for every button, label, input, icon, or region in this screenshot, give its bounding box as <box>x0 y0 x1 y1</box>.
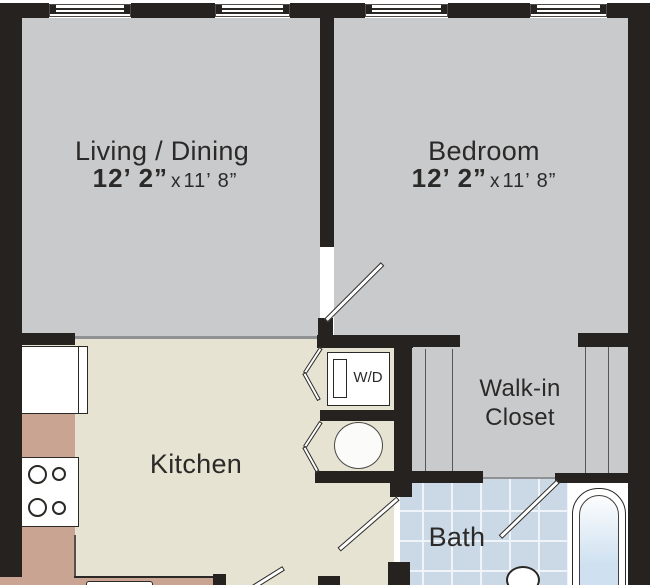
kitchen-counter-upper <box>18 414 75 458</box>
wall-bottom-stub-entry-right <box>318 576 340 585</box>
window-glazing-line <box>531 8 606 10</box>
closet-shelf-line <box>608 347 609 473</box>
stove-burner-small-top <box>52 467 66 481</box>
dimension-primary: 12’ 2” <box>93 163 168 193</box>
wall-top-segment <box>448 3 530 18</box>
wall-top-segment <box>131 3 215 18</box>
wall-wd-divider <box>320 410 398 421</box>
window-jamb <box>124 5 130 14</box>
kitchen-label-text: Kitchen <box>150 449 242 479</box>
bedroom-label-text: Bedroom <box>428 136 540 166</box>
dimension-secondary: 11’ 8” <box>503 170 557 192</box>
kitchen-label: Kitchen <box>150 449 242 480</box>
window <box>49 4 131 17</box>
wall-mid-left <box>0 333 75 345</box>
dimension-separator: x <box>171 171 181 192</box>
window-glazing-line <box>216 8 289 10</box>
wall-closet-top-left <box>400 335 460 347</box>
window-glazing-line <box>531 12 606 14</box>
closet-bath-boundary-line <box>483 477 555 479</box>
counter-edge-vertical <box>74 535 76 578</box>
bathtub-basin <box>579 495 619 585</box>
wall-left-exterior <box>0 3 22 577</box>
kitchen-counter-lower <box>18 527 75 578</box>
floor-plan: W/D <box>0 0 650 585</box>
stove-burner-large-bottom <box>28 498 47 517</box>
walk-in-closet-label-line2: Closet <box>479 403 560 432</box>
washer-dryer-unit <box>333 359 347 398</box>
wall-bottom-stub-entry-left <box>213 574 226 585</box>
window <box>215 4 290 17</box>
dimension-primary: 12’ 2” <box>412 163 487 193</box>
wall-living-bedroom <box>320 16 334 247</box>
dimension-secondary: 11’ 8” <box>184 170 238 192</box>
closet-shelf-line <box>452 349 453 471</box>
closet-shelf-line <box>425 349 426 471</box>
window <box>530 4 607 17</box>
window-glazing-line <box>216 12 289 14</box>
window-jamb <box>600 5 606 14</box>
walk-in-closet-label-line1: Walk-in <box>479 374 560 403</box>
kitchen-living-boundary-line <box>75 336 320 339</box>
walk-in-closet-label: Walk-in Closet <box>479 374 560 432</box>
stove-burner-large-top <box>28 465 47 484</box>
washer-dryer-label-text: W/D <box>353 369 382 386</box>
living-dining-label-text: Living / Dining <box>75 136 249 166</box>
closet-shelf-line <box>585 347 586 473</box>
kitchen-sink <box>86 581 153 585</box>
wall-right-exterior <box>628 3 650 585</box>
window-glazing-line <box>50 8 130 10</box>
window-jamb <box>531 5 537 14</box>
window-jamb <box>441 5 447 14</box>
window-glazing-line <box>366 8 447 10</box>
window <box>365 4 448 17</box>
window-jamb <box>50 5 56 14</box>
wall-bath-north-right <box>555 473 628 483</box>
bedroom-dimensions: 12’ 2”x11’ 8” <box>412 163 557 194</box>
window-jamb <box>366 5 372 14</box>
water-heater <box>334 422 383 469</box>
dimension-separator: x <box>490 171 500 192</box>
wall-bath-west-stub-lower <box>388 562 410 585</box>
window-glazing-line <box>366 12 447 14</box>
bath-label: Bath <box>429 522 486 553</box>
refrigerator-door-line <box>78 347 79 413</box>
wall-closet-top-right <box>578 333 628 347</box>
window-jamb <box>216 5 222 14</box>
living-dining-dimensions: 12’ 2”x11’ 8” <box>93 163 238 194</box>
window-glazing-line <box>50 12 130 14</box>
wall-bath-north-left <box>315 471 483 483</box>
window-jamb <box>283 5 289 14</box>
counter-edge-horizontal <box>74 576 215 578</box>
stove <box>17 457 79 527</box>
washer-dryer-label: W/D <box>353 369 382 386</box>
bath-label-text: Bath <box>429 522 486 552</box>
wall-bath-west-stub-upper <box>390 483 410 497</box>
stove-burner-small-bottom <box>52 501 66 515</box>
